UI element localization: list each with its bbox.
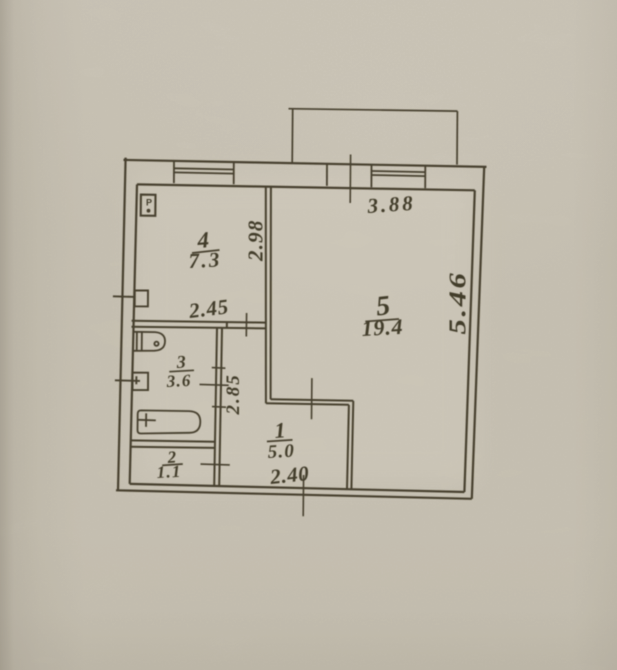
svg-text:19.4: 19.4 — [361, 314, 404, 341]
svg-text:1.1: 1.1 — [156, 462, 182, 482]
svg-text:2.98: 2.98 — [244, 219, 268, 262]
svg-text:3: 3 — [175, 352, 186, 372]
svg-text:5.46: 5.46 — [444, 271, 471, 335]
svg-text:3.88: 3.88 — [366, 191, 417, 218]
svg-text:2.45: 2.45 — [187, 294, 231, 323]
svg-text:1: 1 — [274, 417, 287, 443]
svg-text:3.6: 3.6 — [165, 371, 192, 391]
svg-text:2.40: 2.40 — [268, 461, 310, 489]
svg-text:7.3: 7.3 — [188, 247, 222, 273]
svg-text:5.0: 5.0 — [267, 441, 295, 463]
svg-text:2.85: 2.85 — [223, 373, 244, 415]
svg-text:P: P — [146, 198, 152, 208]
